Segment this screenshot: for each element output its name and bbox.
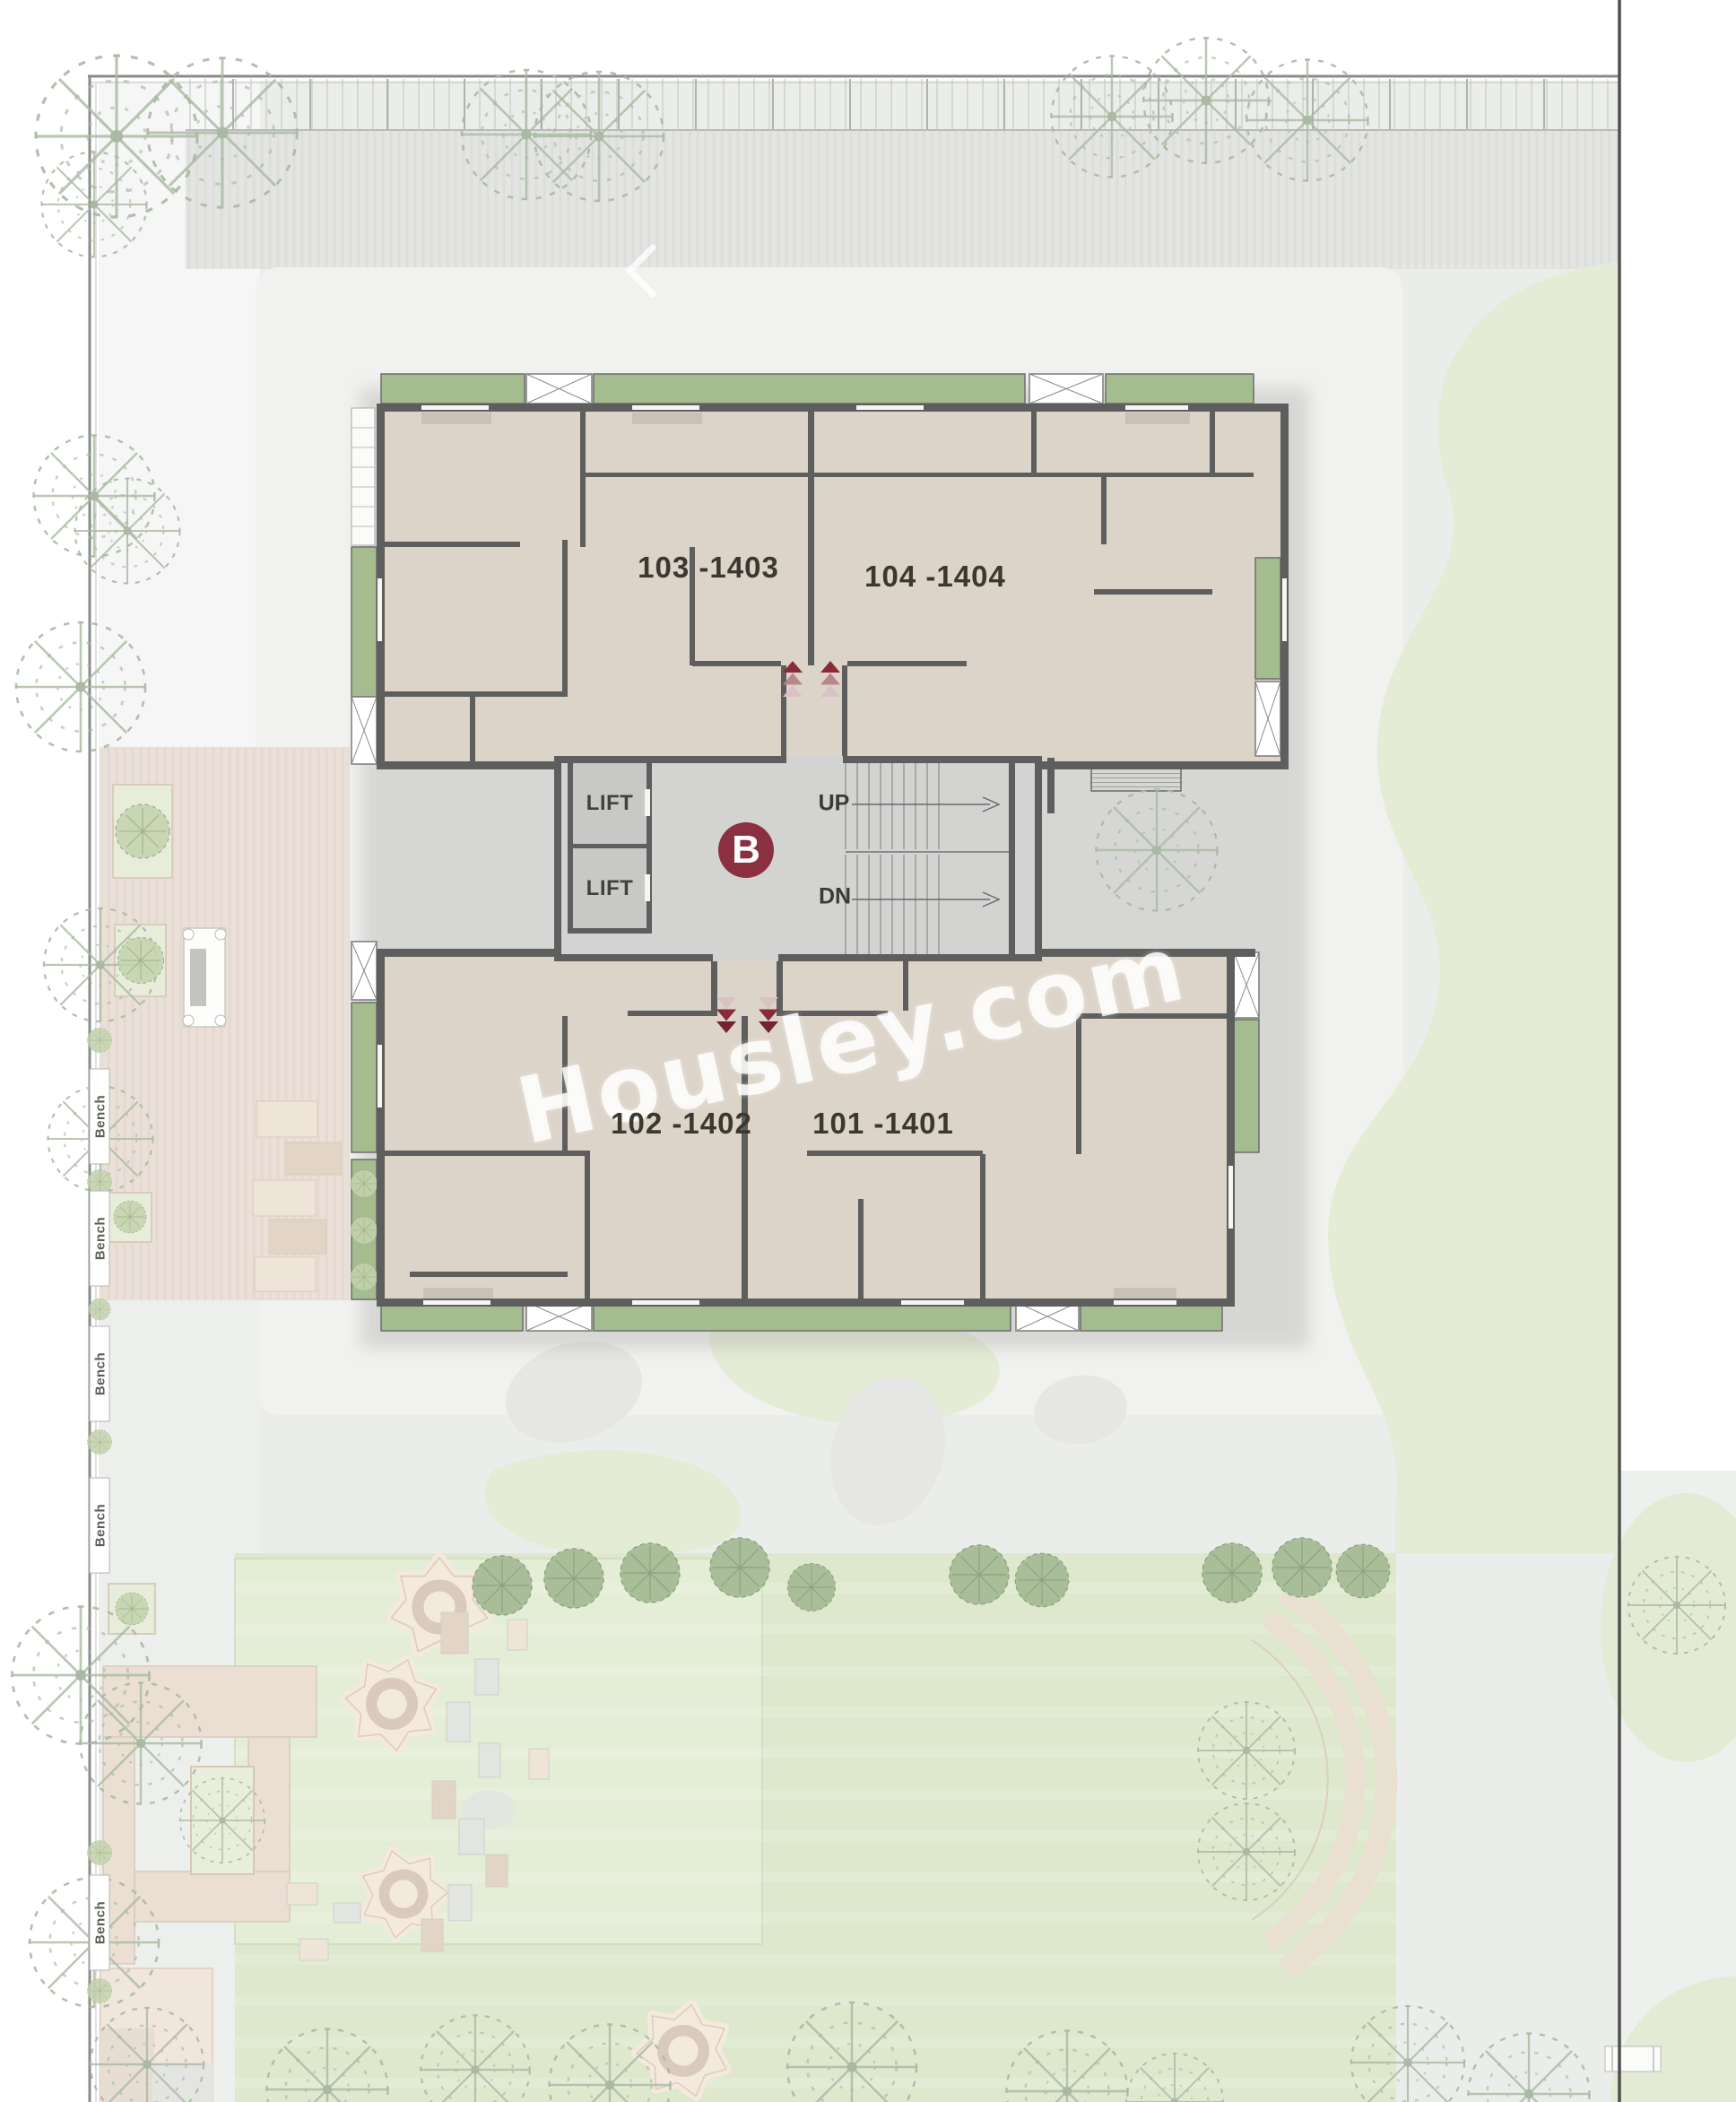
tree-icon [75,479,180,584]
unit-label-102: 102 -1402 [611,1107,752,1141]
shrub-icon [1336,1544,1389,1597]
unit-label-104: 104 -1404 [864,560,1006,594]
stairs-down-label: DN [819,884,851,910]
tree-icon [34,436,155,557]
unit-label-103: 103 -1403 [638,551,779,585]
shrub-icon [788,1564,836,1611]
tree-icon [1198,1702,1295,1799]
shrub-icon [473,1556,532,1615]
bench-label: Bench [93,1095,108,1138]
tree-icon [534,72,664,201]
shrub-icon [544,1549,603,1608]
tree-icon [1052,56,1173,178]
site-plan-page: Housley.com 103 -1403 104 -1404 102 -140… [0,0,1736,2102]
shrub-icon [116,1593,148,1625]
block-badge: B [718,822,774,878]
tree-icon [1628,1557,1725,1654]
shrub-icon [1202,1543,1262,1603]
tree-icon [42,152,147,257]
shrub-icon [950,1545,1009,1604]
lift-label-2: LIFT [586,876,634,901]
lift-label-1: LIFT [586,791,634,816]
tree-icon [36,56,197,217]
shrub-icon [89,1299,110,1320]
shrub-icon [118,938,164,984]
tree-icon [1143,38,1269,163]
unit-label-101: 101 -1401 [812,1107,954,1141]
bench-label: Bench [93,1352,108,1395]
bench-icon [1605,2046,1661,2072]
tree-icon [1247,60,1368,181]
shrub-icon [114,1201,146,1233]
bench-label: Bench [93,1504,108,1547]
tree-icon [1198,1803,1295,1900]
shrub-icon [88,1170,112,1194]
stairs-up-label: UP [819,791,850,817]
shrub-icon [116,804,169,858]
tree-icon [16,622,145,751]
window-ledge [352,408,375,545]
tree-icon [1097,790,1218,911]
tree-icon [180,1778,265,1863]
shrub-icon [88,1029,112,1053]
tree-icon [462,70,591,199]
shrub-icon [88,1979,112,2003]
shrub-icon [88,1841,112,1865]
top-wing [377,404,1284,769]
tree-icon [81,1683,202,1804]
shrub-icon [1272,1538,1332,1597]
bench-label: Bench [93,1217,108,1260]
plaza-bench [183,928,226,1027]
balcony-planter-shrubs [351,1170,378,1290]
shrub-icon [710,1538,769,1597]
shrub-icon [88,1430,112,1455]
tree-icon [148,58,298,208]
bench-label: Bench [93,1901,108,1944]
shrub-icon [1015,1553,1068,1606]
tree-icon [12,1607,149,1744]
shrub-icon [621,1543,680,1603]
